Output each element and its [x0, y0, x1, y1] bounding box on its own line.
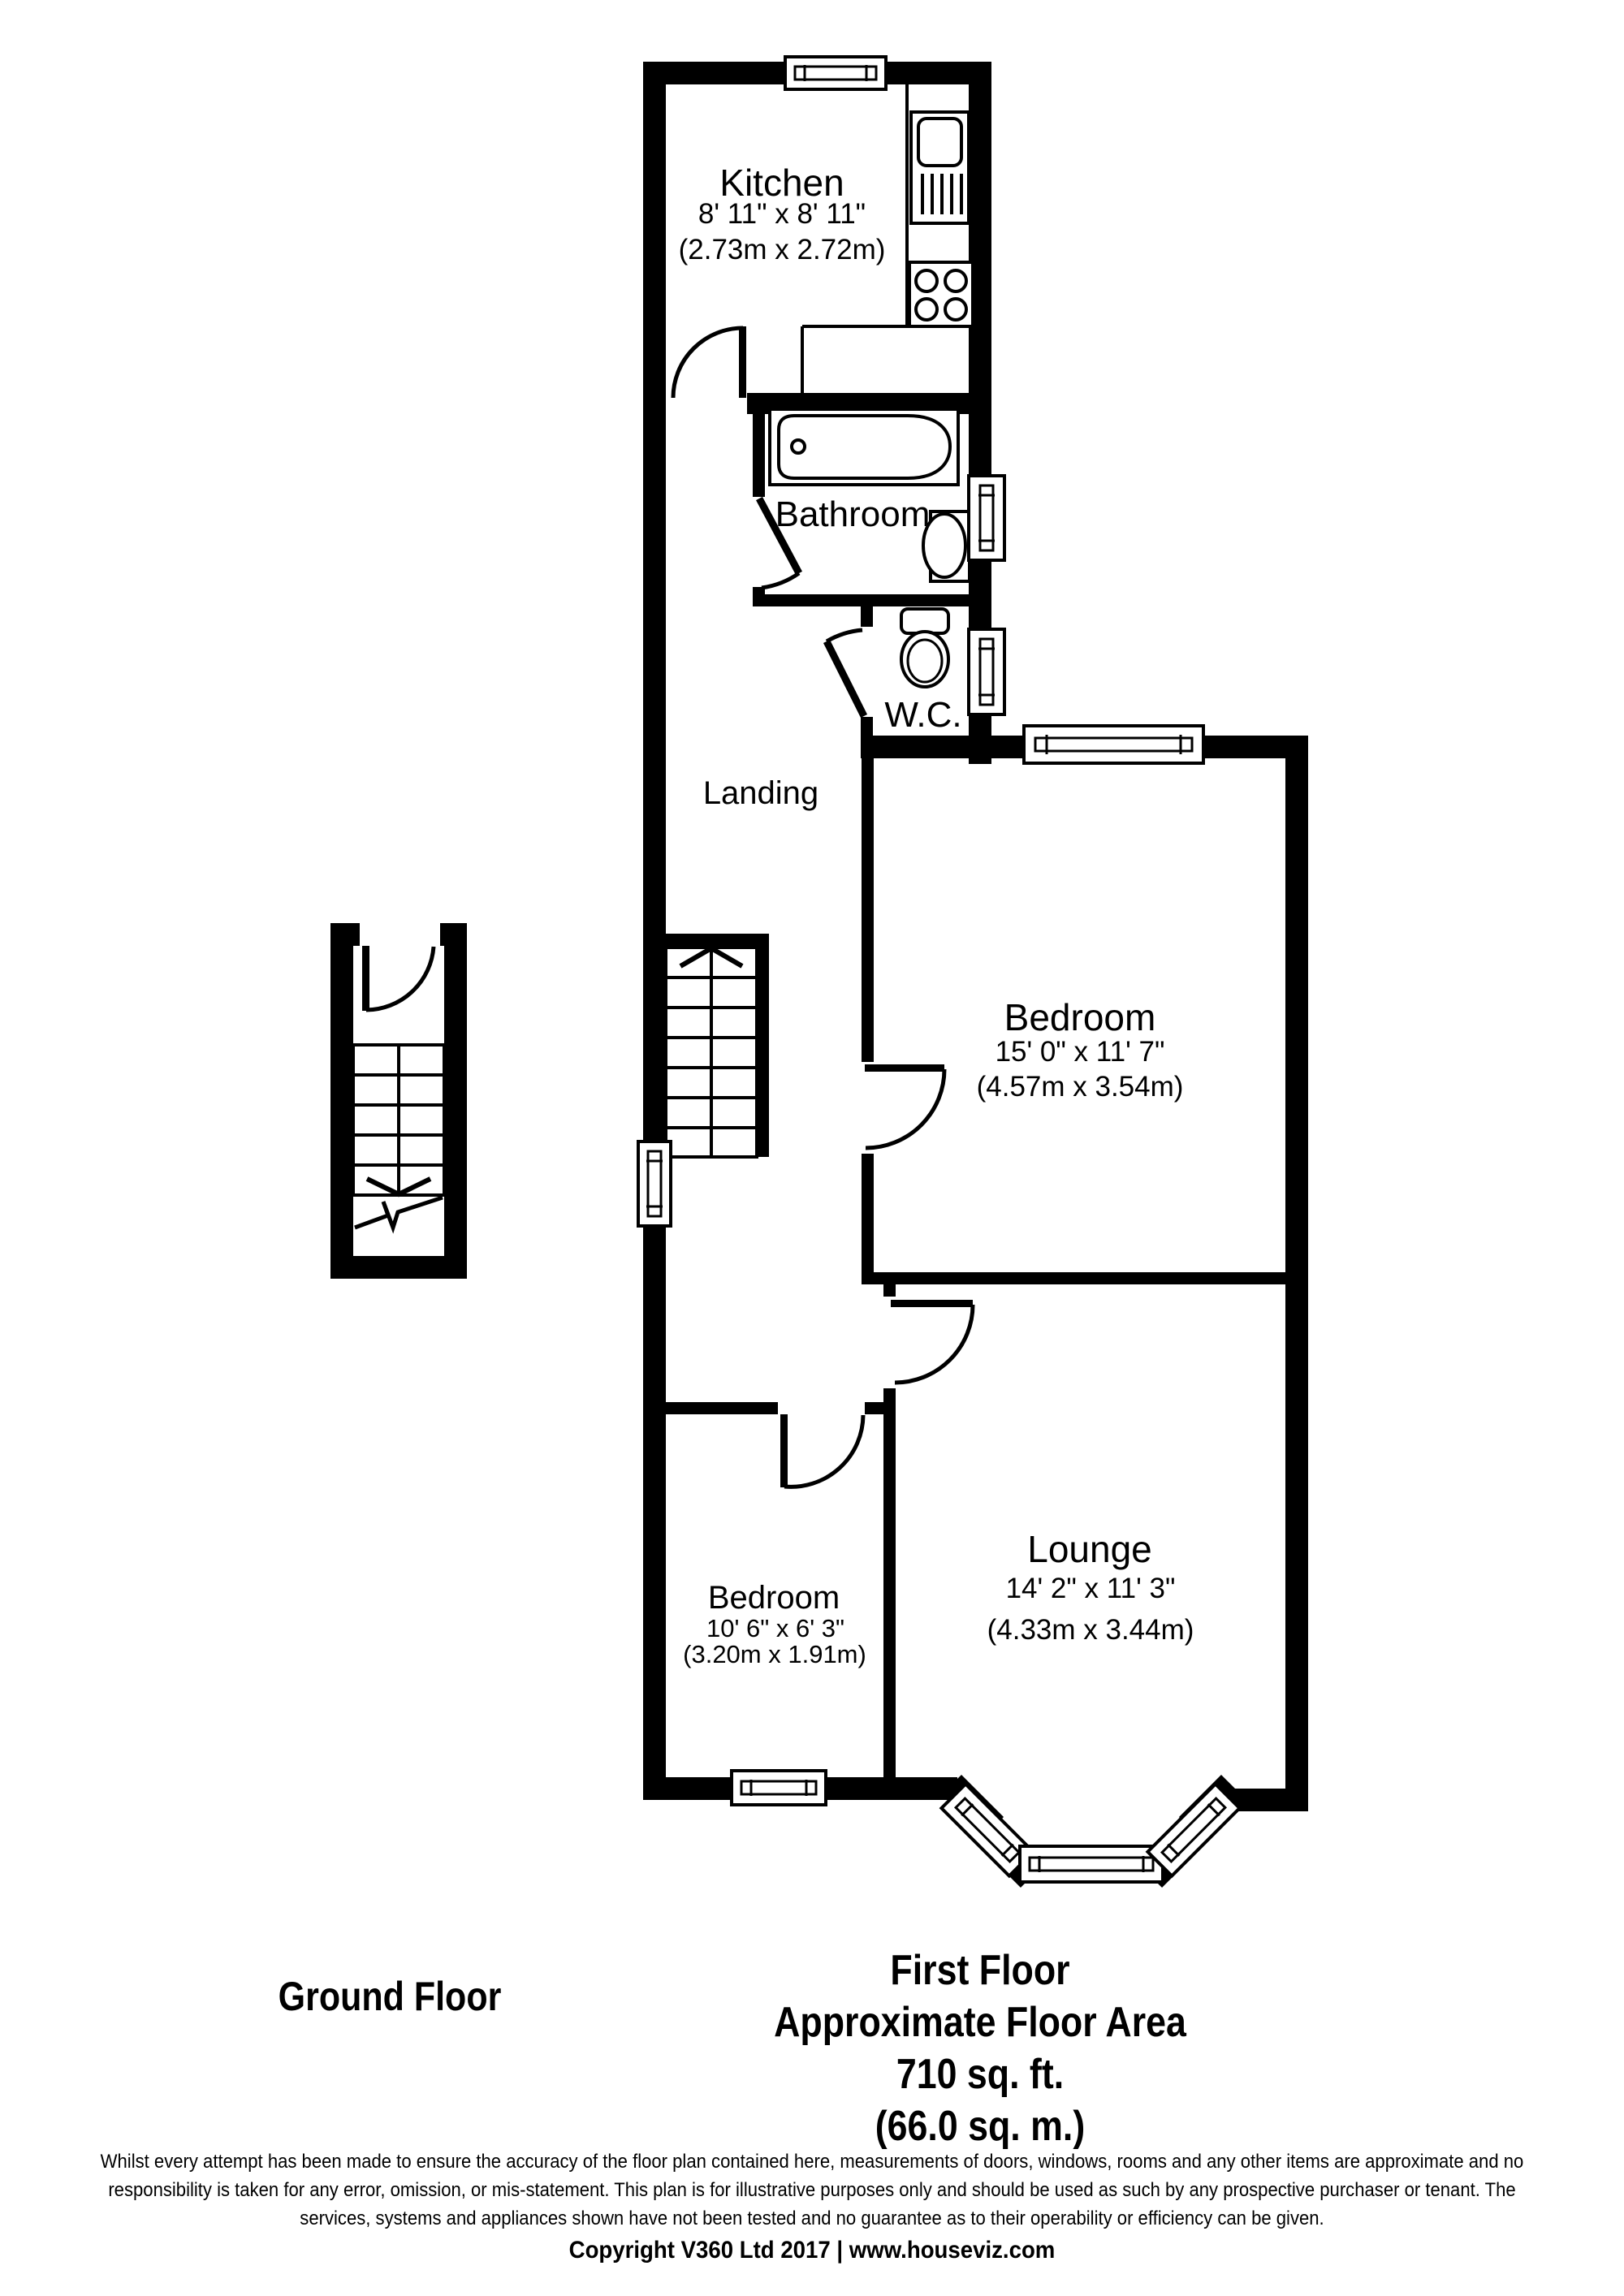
window-icon-kitchen: [785, 57, 886, 89]
copyright-line: Copyright V360 Ltd 2017 | www.houseviz.c…: [65, 2238, 1559, 2264]
hob-icon: [909, 262, 973, 326]
floor-area-imperial: 710 sq. ft.: [631, 2052, 1329, 2097]
wall-left: [643, 62, 666, 1800]
door-icon-lounge: [891, 1300, 973, 1383]
gf-wall-right: [444, 923, 467, 1279]
wall-bathroom-bottom: [753, 594, 969, 606]
wall-bedroom2-top: [666, 1402, 778, 1414]
gf-wall-bottom: [330, 1256, 467, 1279]
disclaimer-line-3: services, systems and appliances shown h…: [65, 2208, 1559, 2229]
bathroom-label: Bathroom: [447, 495, 1259, 534]
floorplan-page: Kitchen 8' 11" x 8' 11" (2.73m x 2.72m) …: [0, 0, 1624, 2296]
lounge-label: Lounge: [684, 1530, 1496, 1570]
stairs-down-icon: [353, 1045, 444, 1228]
wall-bedroom2-top-stub: [865, 1402, 883, 1414]
window-icon-landing: [638, 1142, 671, 1226]
wall-bathroom-left-upper: [753, 414, 765, 497]
door-icon-kitchen: [673, 326, 746, 398]
approximate-floor-area-label: Approximate Floor Area: [631, 2000, 1329, 2045]
gf-wall-top-right: [440, 923, 467, 946]
bath-icon: [770, 409, 958, 485]
window-icon-bay-right: [1147, 1784, 1239, 1875]
door-icon-bedroom2: [780, 1414, 863, 1487]
disclaimer-line-1: Whilst every attempt has been made to en…: [65, 2151, 1559, 2173]
bedroom1-dims-imperial: 15' 0" x 11' 7": [674, 1037, 1486, 1068]
bedroom1-dims-metric: (4.57m x 3.54m): [674, 1072, 1486, 1103]
wall-wc-left-upper: [861, 606, 873, 627]
first-floor-title: First Floor: [631, 1948, 1329, 1993]
stairs-break-line: [355, 1198, 443, 1228]
bedroom2-dims-metric: (3.20m x 1.91m): [369, 1641, 1181, 1668]
gf-wall-top-left: [330, 923, 360, 946]
gf-wall-left: [330, 923, 353, 1279]
window-icon-bay-centre: [1020, 1846, 1163, 1882]
door-icon-ground-floor: [362, 946, 434, 1011]
wall-bedroom-left-lower: [862, 1154, 874, 1284]
disclaimer-line-2: responsibility is taken for any error, o…: [65, 2180, 1559, 2201]
wall-lounge-left-stub: [883, 1284, 896, 1297]
wall-stairs-top: [666, 934, 769, 947]
kitchen-dims-metric: (2.73m x 2.72m): [376, 235, 1188, 265]
wall-bedroom-lounge-divider: [862, 1272, 1308, 1284]
toilet-icon: [901, 609, 948, 687]
wc-label: W.C.: [517, 696, 1329, 735]
bedroom2-dims-imperial: 10' 6" x 6' 3": [369, 1615, 1181, 1642]
window-icon-bedroom2: [732, 1771, 826, 1805]
bedroom1-label: Bedroom: [674, 998, 1486, 1038]
landing-label: Landing: [355, 776, 1167, 811]
kitchen-dims-imperial: 8' 11" x 8' 11": [376, 199, 1188, 230]
bedroom2-label: Bedroom: [368, 1581, 1180, 1616]
floor-area-metric: (66.0 sq. m.): [631, 2104, 1329, 2149]
